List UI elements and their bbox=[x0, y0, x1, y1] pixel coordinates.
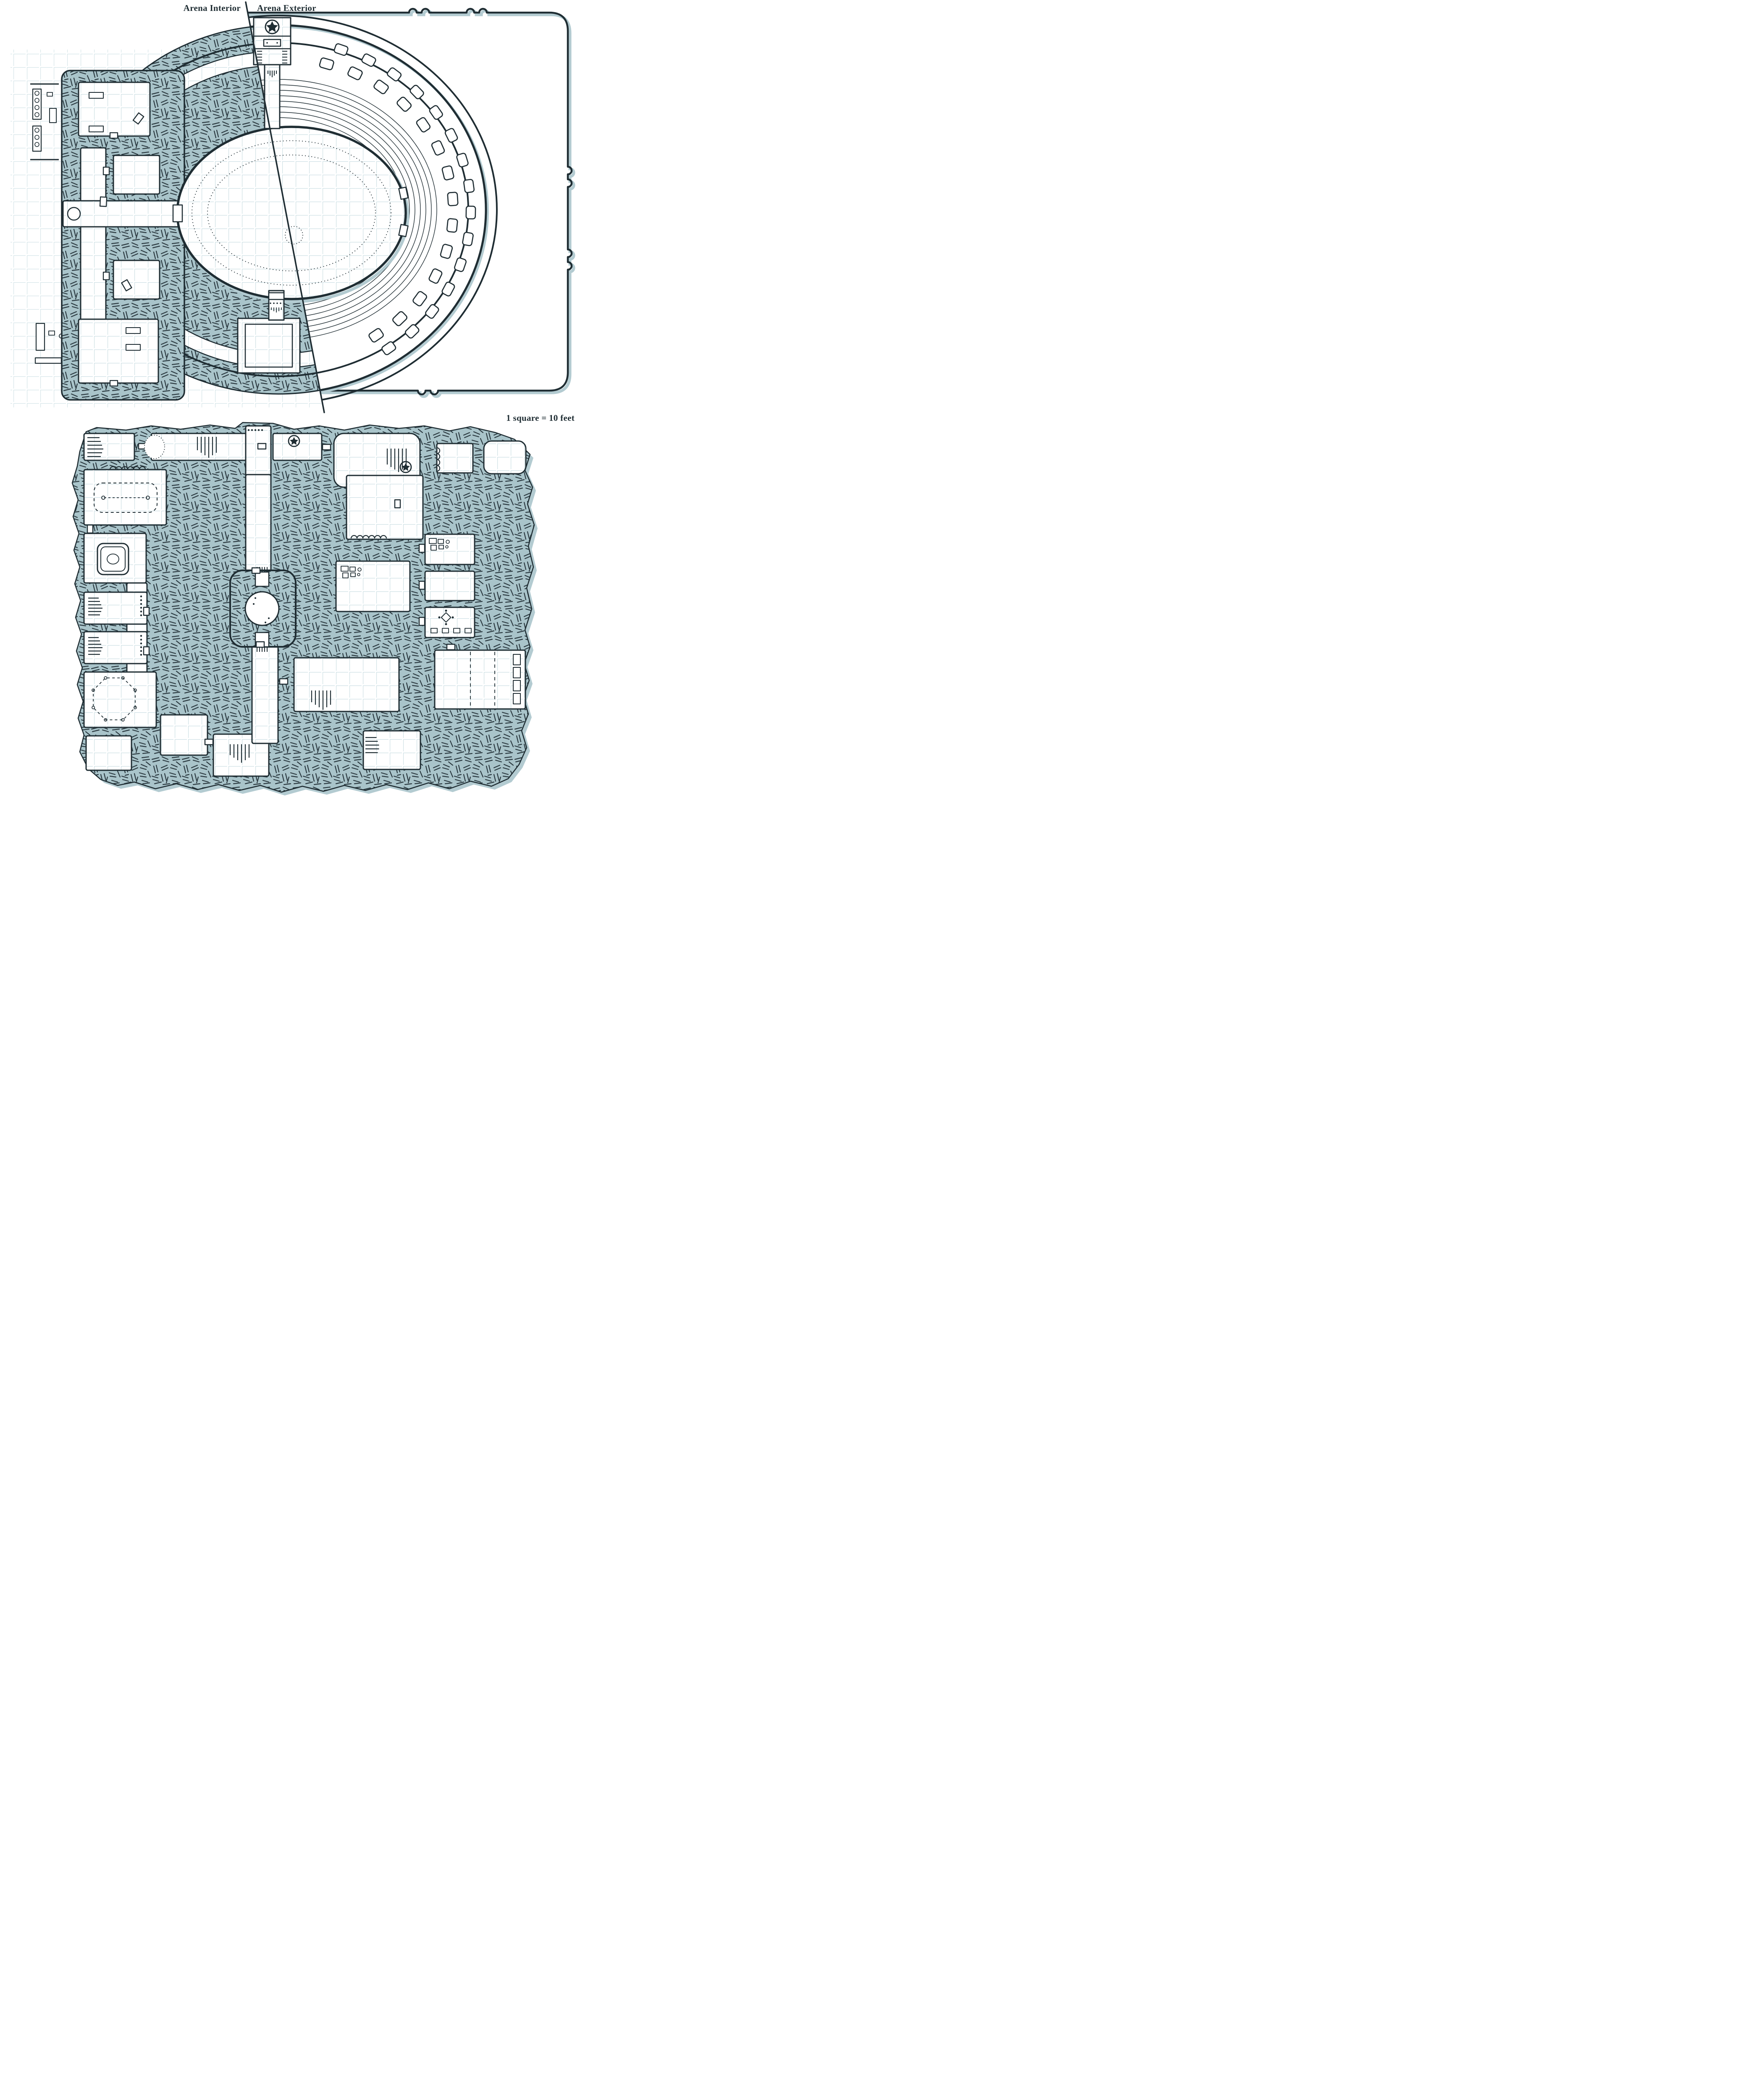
chair-icon bbox=[431, 628, 437, 633]
speckle bbox=[265, 622, 266, 623]
threshold-dot bbox=[140, 603, 142, 605]
seat-box-icon bbox=[441, 281, 456, 297]
table-icon bbox=[89, 92, 103, 98]
scale-note: 1 square = 10 feet bbox=[506, 413, 575, 423]
door-icon bbox=[110, 133, 118, 138]
threshold-dot bbox=[140, 643, 142, 644]
chair-icon bbox=[442, 628, 449, 633]
seat-box-icon bbox=[454, 257, 467, 272]
sw-room bbox=[86, 736, 131, 770]
door-icon bbox=[395, 500, 400, 508]
crate-icon bbox=[49, 331, 55, 335]
door-icon bbox=[87, 525, 93, 533]
west-floor-gate bbox=[173, 205, 182, 222]
seat-box-icon bbox=[442, 165, 454, 181]
c-hall bbox=[346, 475, 423, 539]
door-icon bbox=[103, 272, 109, 280]
door-icon bbox=[144, 647, 149, 655]
threshold-dot bbox=[270, 302, 271, 304]
crates-icon bbox=[341, 566, 348, 571]
threshold-dot bbox=[140, 654, 142, 656]
well-chamber bbox=[230, 567, 296, 652]
seat-box-icon bbox=[425, 304, 440, 319]
seat-box-icon bbox=[347, 66, 363, 80]
w-bath-room bbox=[84, 470, 166, 525]
crates-icon bbox=[351, 573, 355, 577]
annex-cell-a bbox=[113, 155, 160, 194]
threshold-dot bbox=[248, 429, 249, 431]
ladder-icon bbox=[255, 572, 269, 586]
seat-box-icon bbox=[444, 128, 458, 143]
speckle bbox=[268, 617, 270, 619]
gem-dot bbox=[445, 623, 447, 625]
n-corridor bbox=[151, 433, 254, 460]
threshold-dot bbox=[140, 611, 142, 612]
s-room-b bbox=[363, 731, 420, 769]
arena-dungeon-map-svg: Arena Interior Arena Exterior 1 square =… bbox=[0, 0, 588, 798]
table-icon bbox=[126, 328, 140, 333]
annex-room-sw bbox=[79, 319, 158, 383]
threshold-dot bbox=[276, 302, 278, 304]
seat-box-icon bbox=[466, 206, 476, 219]
c-corridor-n bbox=[246, 475, 271, 573]
map-page: Arena Interior Arena Exterior 1 square =… bbox=[0, 0, 588, 798]
well-with-ladders-icon bbox=[245, 592, 279, 625]
seat-box-icon bbox=[456, 153, 469, 168]
bed-icon bbox=[513, 680, 520, 691]
table-icon bbox=[126, 344, 140, 350]
door-icon bbox=[419, 617, 425, 625]
crates-icon bbox=[431, 545, 436, 550]
gem-dot bbox=[445, 610, 447, 612]
gem-dot bbox=[452, 617, 454, 619]
n-stub-corridor bbox=[246, 426, 271, 477]
door-icon bbox=[252, 568, 260, 573]
threshold-dot bbox=[251, 429, 253, 431]
seat-box-icon bbox=[409, 84, 425, 100]
door-icon bbox=[419, 544, 425, 552]
gem-dot bbox=[438, 617, 441, 619]
east-gate-b bbox=[399, 224, 408, 236]
door-icon bbox=[100, 197, 107, 207]
door-icon bbox=[323, 444, 331, 450]
s-room-a bbox=[160, 715, 207, 755]
crates-icon bbox=[350, 567, 355, 571]
seat-box-icon bbox=[429, 105, 444, 120]
seat-box-icon bbox=[368, 328, 384, 343]
south-floor-gate bbox=[269, 293, 284, 299]
seat-box-icon bbox=[416, 117, 431, 133]
bed-icon bbox=[513, 693, 520, 704]
seat-box-icon bbox=[462, 232, 474, 246]
threshold-dot bbox=[140, 635, 142, 637]
seat-box-icon bbox=[396, 96, 412, 112]
threshold-dot bbox=[283, 302, 285, 304]
seat-box-icon bbox=[412, 291, 428, 307]
seat-box-icon bbox=[333, 43, 349, 56]
ne-room-b bbox=[484, 441, 526, 474]
arena-interior-label: Arena Interior bbox=[184, 3, 241, 13]
table-icon bbox=[89, 126, 103, 132]
crates-icon bbox=[429, 538, 436, 543]
seat-box-icon bbox=[373, 79, 389, 94]
threshold-dot bbox=[140, 639, 142, 640]
seat-box-icon bbox=[428, 268, 443, 284]
door-icon bbox=[447, 644, 455, 650]
seat-box-icon bbox=[392, 311, 408, 327]
seat-box-icon bbox=[440, 244, 453, 259]
se-dorm bbox=[435, 650, 525, 709]
seat-box-icon bbox=[431, 140, 445, 156]
door-icon bbox=[205, 739, 213, 745]
door-icon bbox=[103, 167, 109, 175]
seat-box-icon bbox=[381, 341, 396, 355]
s-hall bbox=[294, 658, 399, 711]
arena-floor bbox=[177, 127, 408, 302]
threshold-dot bbox=[280, 302, 281, 304]
shelf-icon bbox=[33, 89, 41, 119]
arena-floor-oval bbox=[177, 127, 406, 299]
threshold-dot bbox=[140, 599, 142, 601]
east-gate-a bbox=[399, 187, 408, 199]
threshold-dot bbox=[258, 429, 260, 431]
crates-icon bbox=[439, 545, 444, 549]
seat-box-icon bbox=[404, 324, 420, 339]
annex-cell-b bbox=[113, 260, 160, 299]
crates-icon bbox=[343, 573, 348, 578]
e-cell-b bbox=[425, 571, 475, 601]
door-icon bbox=[258, 444, 266, 449]
seat-box-icon bbox=[386, 67, 402, 82]
speckle bbox=[253, 603, 255, 605]
seat-box-icon bbox=[319, 58, 334, 71]
gate-alcove bbox=[68, 207, 80, 220]
bench-icon bbox=[35, 358, 61, 363]
speckle bbox=[255, 597, 256, 599]
threshold-dot bbox=[273, 302, 275, 304]
bed-icon bbox=[513, 654, 520, 665]
threshold-dot bbox=[140, 614, 142, 616]
shelf-icon bbox=[36, 323, 45, 350]
ne-room-a bbox=[437, 444, 473, 473]
threshold-dot bbox=[140, 646, 142, 648]
threshold-dot bbox=[140, 607, 142, 609]
chair-icon bbox=[465, 628, 471, 633]
door-icon bbox=[419, 581, 425, 589]
chair-icon bbox=[454, 628, 460, 633]
bed-icon bbox=[513, 667, 520, 678]
crate-icon bbox=[47, 92, 52, 96]
table-icon bbox=[50, 108, 56, 123]
threshold-dot bbox=[140, 650, 142, 652]
door-icon bbox=[280, 679, 288, 684]
door-icon bbox=[144, 607, 149, 615]
seat-box-icon bbox=[464, 179, 475, 193]
arena-exterior-label: Arena Exterior bbox=[257, 3, 316, 13]
threshold-dot bbox=[140, 596, 142, 597]
seat-box-icon bbox=[447, 218, 458, 232]
dungeon-map bbox=[72, 423, 538, 795]
door-icon bbox=[256, 642, 264, 647]
crates-icon bbox=[438, 539, 444, 543]
bench-icon bbox=[264, 39, 281, 46]
door-icon bbox=[110, 381, 118, 386]
threshold-dot bbox=[261, 429, 263, 431]
threshold-dot bbox=[255, 429, 256, 431]
c-corridor-s bbox=[252, 646, 278, 743]
shelf-icon bbox=[33, 126, 41, 151]
cave-mouth-icon bbox=[144, 435, 165, 459]
seat-box-icon bbox=[447, 192, 458, 206]
sw-octagon-room bbox=[84, 672, 156, 727]
